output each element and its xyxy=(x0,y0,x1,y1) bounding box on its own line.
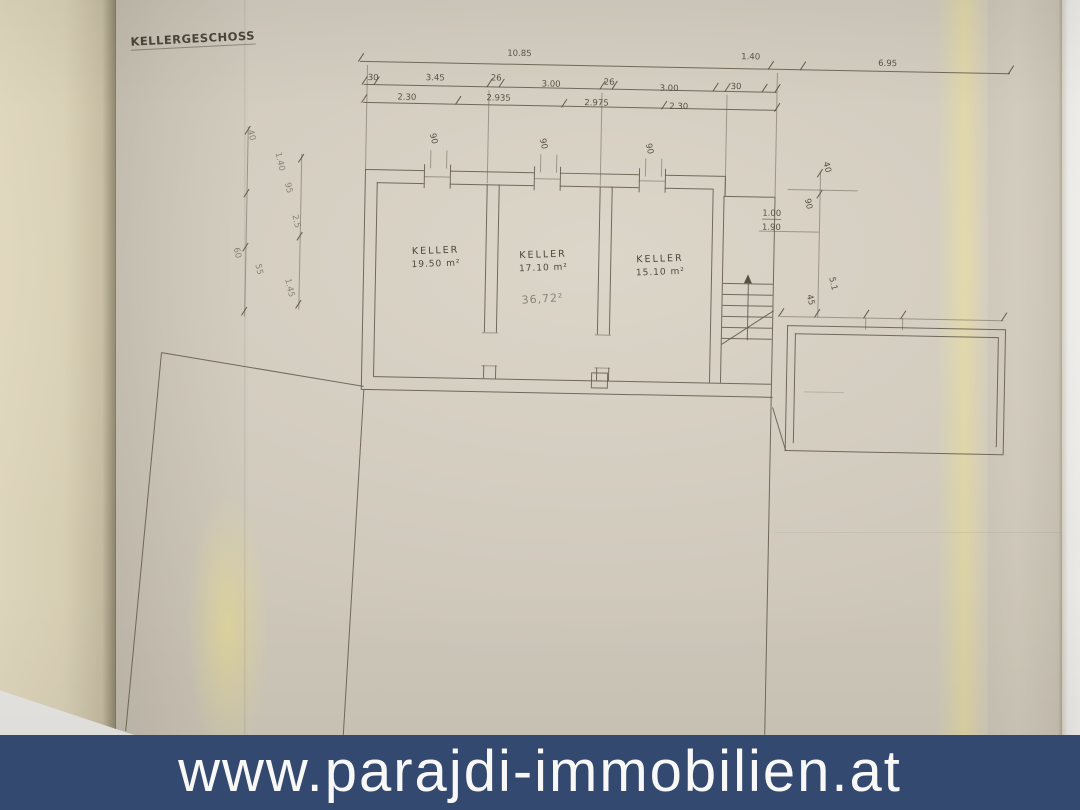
plan-line xyxy=(363,102,776,111)
plan-line xyxy=(540,154,541,172)
plan-line xyxy=(720,196,725,383)
plan-line xyxy=(446,151,447,169)
plan-line xyxy=(793,333,796,443)
plan-line xyxy=(709,189,714,383)
door-symbol xyxy=(591,372,608,388)
plan-line xyxy=(244,127,249,317)
plan-line xyxy=(343,389,365,734)
plan-line xyxy=(608,368,609,381)
dim-label: 1.40 xyxy=(741,52,760,62)
plan-line xyxy=(902,318,903,330)
room-name: KELLER xyxy=(393,244,478,258)
plan-line xyxy=(996,337,999,447)
dim-label: 6.95 xyxy=(878,59,897,69)
dim-label: 3.00 xyxy=(660,84,679,94)
room-keller-2: KELLER 17.10 m² xyxy=(503,248,584,275)
window-width: 90 xyxy=(537,137,549,150)
plan-title: KELLERGESCHOSS xyxy=(130,28,255,50)
window-width: 90 xyxy=(643,142,655,155)
watermark-banner: www.parajdi-immobilien.at xyxy=(0,735,1080,810)
plan-line xyxy=(496,185,500,333)
plan-line xyxy=(377,182,424,184)
dim-label: 40 xyxy=(821,161,833,174)
plan-line xyxy=(787,325,1005,330)
dim-label: 2.30 xyxy=(669,102,688,112)
plan-line xyxy=(450,184,534,187)
plan-line xyxy=(772,407,786,450)
room-area: 19.50 m² xyxy=(393,258,478,271)
scanned-floorplan-photo: KELLERGESCHOSS 10.85 1.40 6.95 30 3.45 2… xyxy=(0,0,1080,810)
plan-line xyxy=(665,188,713,190)
plan-line xyxy=(780,316,1003,321)
dim-label: 1.00 xyxy=(762,209,781,220)
dim-label: 3.45 xyxy=(426,73,445,83)
dim-label: 60 xyxy=(231,247,243,260)
dim-label: 1.90 xyxy=(762,223,781,233)
room-name: KELLER xyxy=(620,252,700,266)
dim-label: 30 xyxy=(368,73,379,83)
plan-line xyxy=(609,187,613,335)
room-keller-3: KELLER 15.10 m² xyxy=(620,252,701,279)
plan-line xyxy=(785,450,1003,455)
plan-line xyxy=(665,175,725,177)
dim-label: 5.1 xyxy=(826,276,839,291)
dim-label: 40 xyxy=(245,129,257,142)
dim-label: 1.45 xyxy=(282,278,296,299)
stair-direction-arrow xyxy=(744,274,752,283)
dim-label: 26 xyxy=(604,78,615,88)
plan-line xyxy=(1008,65,1014,74)
plan-line xyxy=(534,178,560,180)
plan-line xyxy=(645,158,646,176)
plan-line xyxy=(661,159,662,177)
plan-line xyxy=(725,176,726,197)
plan-line xyxy=(556,155,557,173)
dim-label: 90 xyxy=(802,198,814,211)
dim-label: 45 xyxy=(804,294,816,307)
dim-label: 30 xyxy=(731,82,742,92)
plan-line xyxy=(365,169,424,171)
plan-line xyxy=(373,376,771,385)
room-area: 15.10 m² xyxy=(620,266,700,279)
plan-line xyxy=(747,282,749,340)
plan-line xyxy=(725,196,775,198)
plan-line xyxy=(373,182,378,376)
plan-line xyxy=(639,180,665,182)
plan-line xyxy=(764,397,772,735)
plan-line xyxy=(795,333,998,338)
window-width: 90 xyxy=(427,132,439,145)
plan-line xyxy=(560,167,562,191)
plan-line xyxy=(161,352,363,387)
plan-line xyxy=(495,365,496,378)
plan-line xyxy=(361,389,773,398)
dim-label: 2.935 xyxy=(486,93,511,103)
floorplan-drawing: KELLERGESCHOSS 10.85 1.40 6.95 30 3.45 2… xyxy=(0,0,1080,748)
plan-line xyxy=(1001,312,1007,321)
room-keller-1: KELLER 19.50 m² xyxy=(393,244,479,271)
dim-label: 2.30 xyxy=(397,93,416,103)
plan-line xyxy=(865,318,866,330)
plan-line xyxy=(1003,329,1007,455)
dim-label: 55 xyxy=(252,263,264,276)
plan-line xyxy=(365,65,368,169)
dim-label: 95 xyxy=(282,182,294,195)
plan-line xyxy=(595,334,611,335)
plan-line xyxy=(785,325,789,451)
plan-line xyxy=(125,353,162,731)
plan-line xyxy=(424,176,450,178)
room-area: 17.10 m² xyxy=(503,262,583,275)
plan-line xyxy=(360,61,1010,75)
plan-line xyxy=(484,184,488,332)
dim-total: 10.85 xyxy=(507,49,532,59)
plan-line xyxy=(804,391,844,393)
plan-line xyxy=(482,332,498,333)
plan-line xyxy=(597,186,601,334)
agency-url-text: www.parajdi-immobilien.at xyxy=(178,738,902,805)
dim-label: 2.975 xyxy=(584,98,609,108)
plan-line xyxy=(361,169,366,389)
plan-line xyxy=(430,150,431,168)
plan-line xyxy=(483,365,484,378)
dim-label: 3.00 xyxy=(542,79,561,89)
room-name: KELLER xyxy=(503,248,583,262)
dim-label: 1.40 xyxy=(273,151,287,172)
dim-label: 26 xyxy=(491,73,502,83)
plan-line xyxy=(450,171,534,174)
pencil-area-note: 36,72² xyxy=(521,291,564,307)
